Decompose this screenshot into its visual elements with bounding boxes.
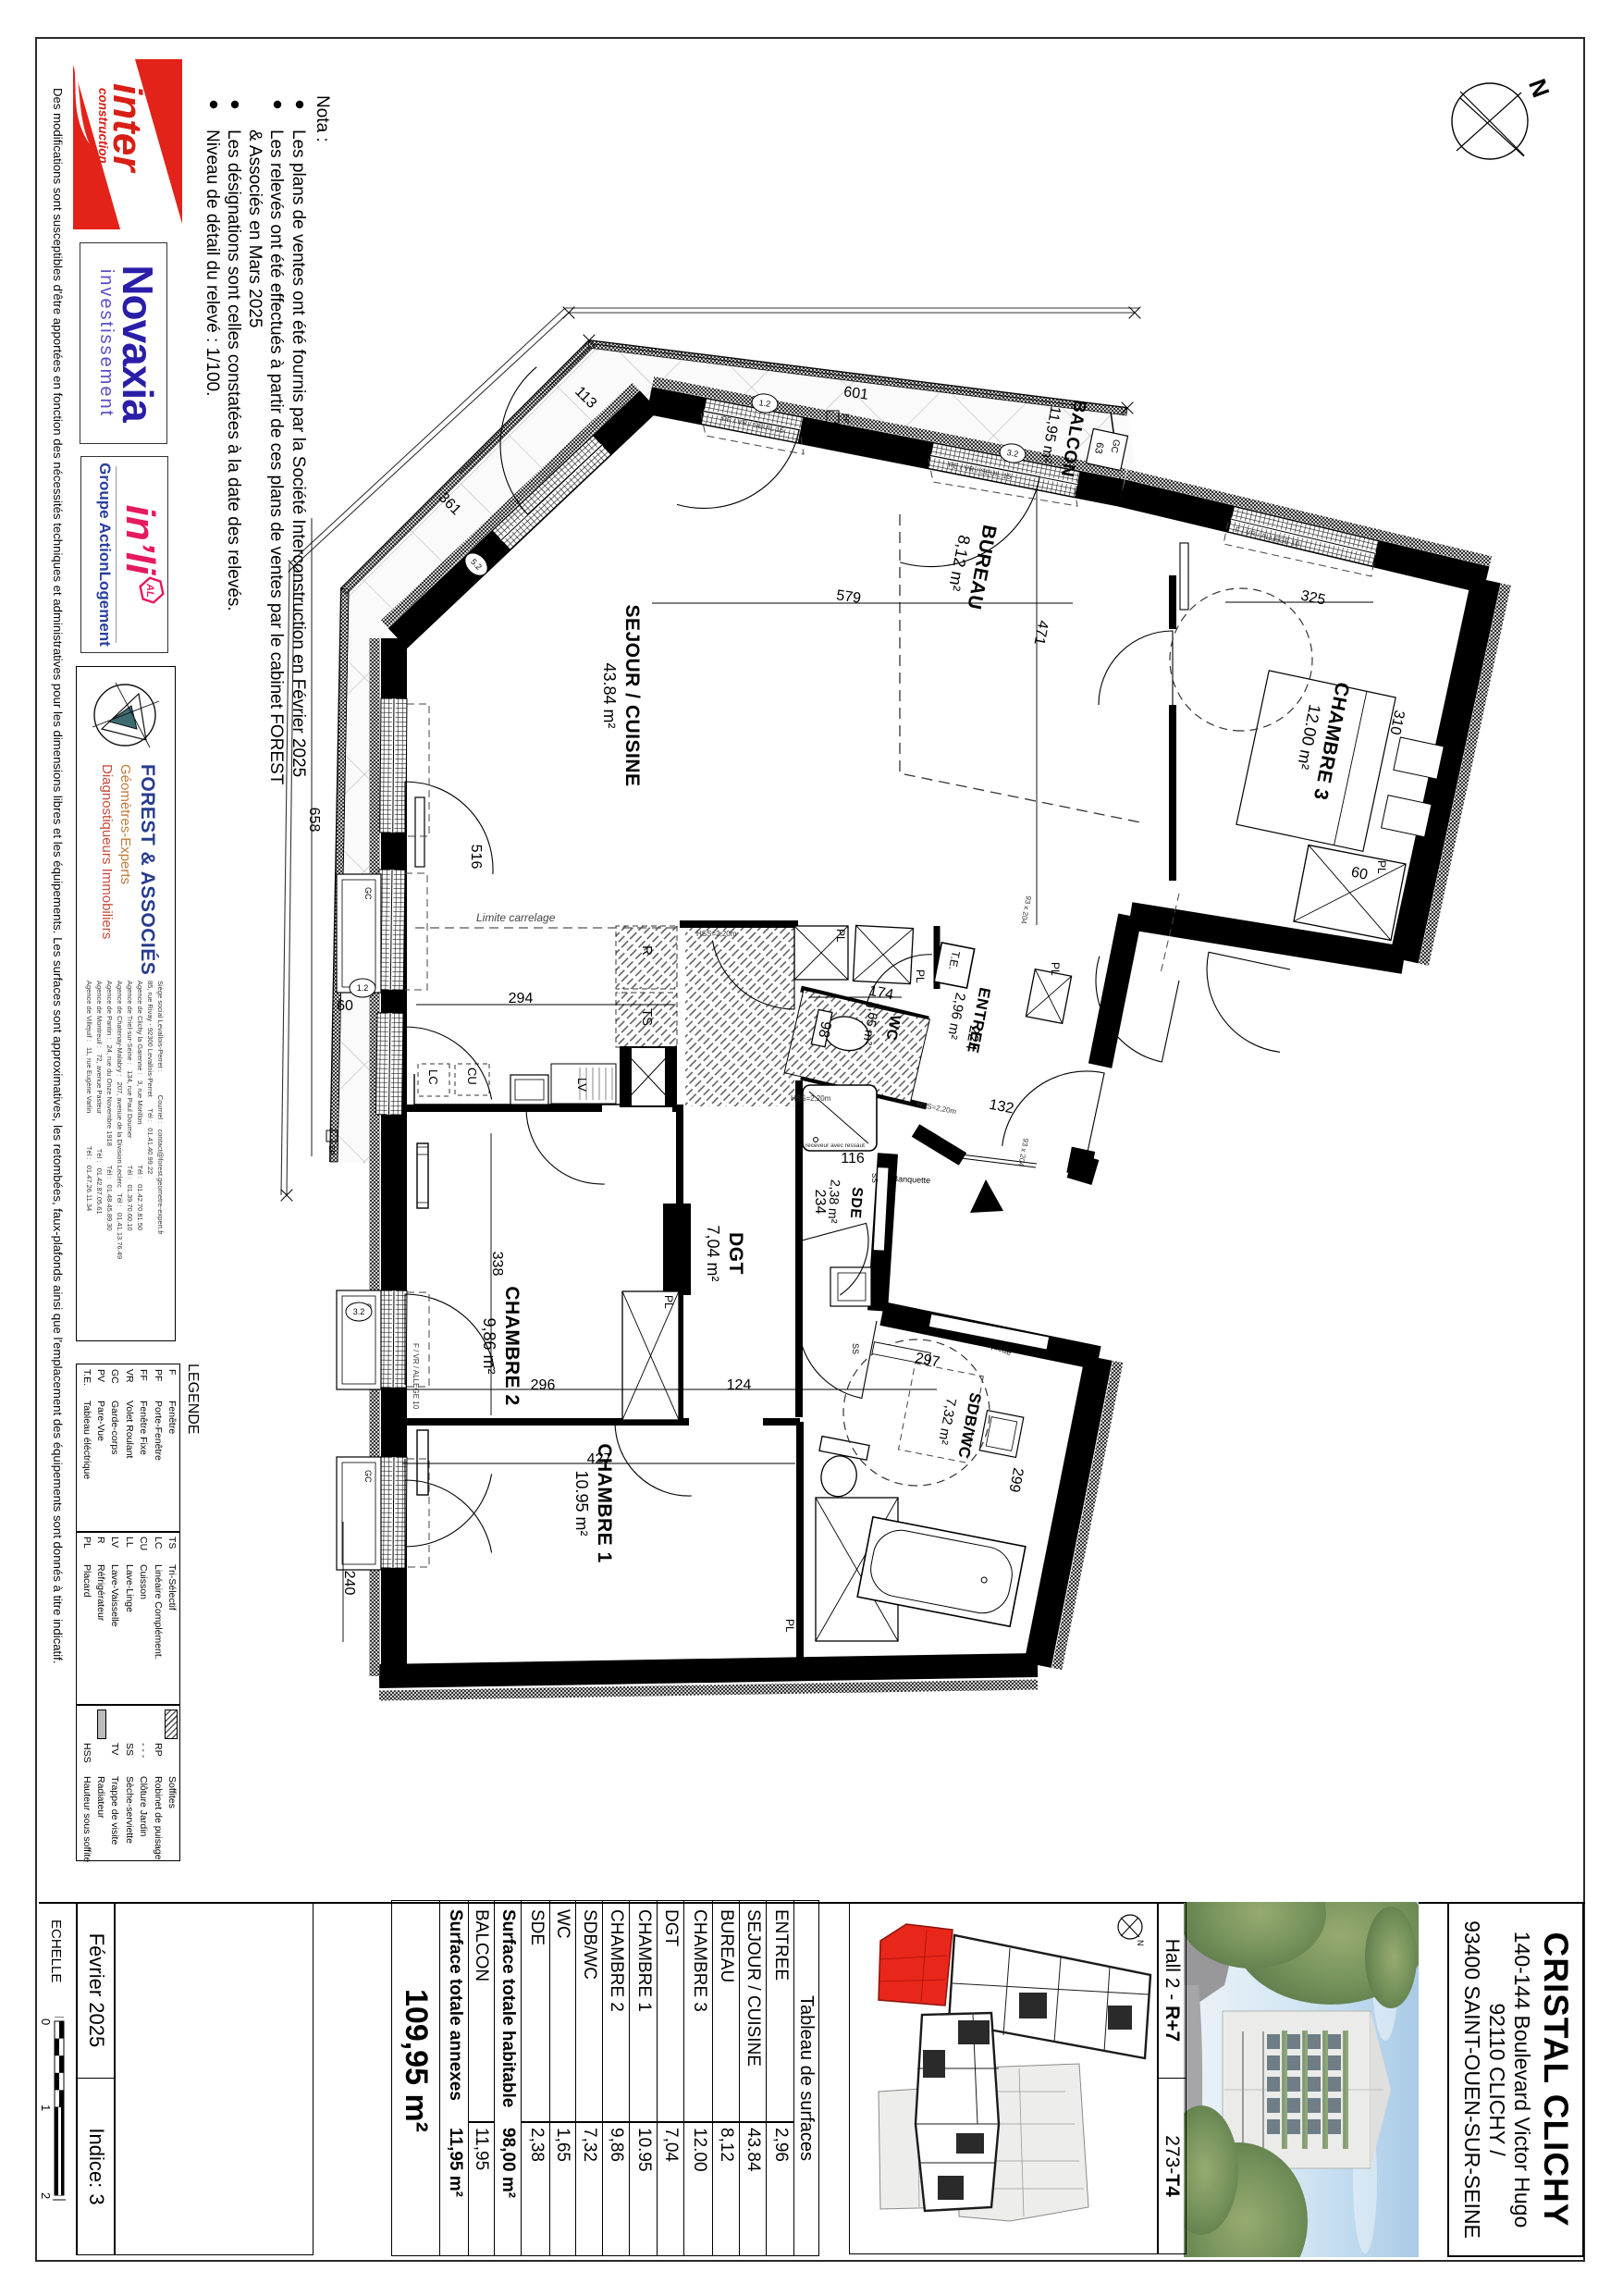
svg-text:325: 325 <box>1299 588 1327 609</box>
svg-text:579: 579 <box>835 587 862 607</box>
svg-text:CHAMBRE 2: CHAMBRE 2 <box>501 1286 523 1405</box>
svg-text:LC: LC <box>426 1069 440 1085</box>
svg-text:98: 98 <box>815 1020 833 1040</box>
svg-text:3.2: 3.2 <box>1006 448 1019 459</box>
svg-text:234: 234 <box>812 1190 828 1215</box>
svg-text:1.2: 1.2 <box>357 983 369 993</box>
svg-text:658: 658 <box>306 808 322 833</box>
svg-text:N: N <box>1523 75 1555 101</box>
svg-text:338: 338 <box>489 1252 505 1277</box>
svg-text:2,96 m²: 2,96 m² <box>944 992 968 1041</box>
svg-text:427: 427 <box>587 1451 612 1467</box>
svg-text:Niveau de détail du relevé : 1: Niveau de détail du relevé : 1/100. <box>203 130 222 396</box>
svg-text:TS: TS <box>639 1008 655 1026</box>
svg-text:1: 1 <box>40 2105 53 2111</box>
svg-text:2,38 m²: 2,38 m² <box>825 1179 842 1224</box>
svg-text:SS: SS <box>851 1343 860 1354</box>
svg-text:Nota :: Nota : <box>313 95 332 142</box>
svg-text:Limite carrelage: Limite carrelage <box>476 911 556 924</box>
svg-text:297: 297 <box>914 1351 941 1371</box>
svg-text:PL: PL <box>1375 860 1388 874</box>
svg-text:240: 240 <box>341 1571 357 1596</box>
svg-text:60: 60 <box>337 998 353 1014</box>
svg-text:F / VR / ALLEGE 10: F / VR / ALLEGE 10 <box>412 1343 420 1410</box>
svg-text:HSS=2,20m: HSS=2,20m <box>696 930 737 938</box>
svg-text:516: 516 <box>468 845 484 870</box>
svg-text:HSS=2,20m: HSS=2,20m <box>916 1100 958 1116</box>
svg-text:294: 294 <box>509 991 534 1006</box>
svg-text:63: 63 <box>1092 441 1105 454</box>
svg-text:2: 2 <box>40 2192 53 2199</box>
svg-text:HSS=2,20m: HSS=2,20m <box>791 1094 831 1103</box>
svg-text:AL: AL <box>144 583 155 598</box>
svg-text:7,32 m²: 7,32 m² <box>935 1397 959 1446</box>
svg-text:R: R <box>639 945 655 956</box>
svg-text:N: N <box>1136 1940 1145 1946</box>
svg-text:132: 132 <box>988 1097 1015 1117</box>
svg-text:EP: EP <box>327 1145 336 1155</box>
svg-text:GC: GC <box>363 887 373 900</box>
svg-text:PL: PL <box>914 969 927 983</box>
svg-text:0: 0 <box>40 2018 53 2025</box>
svg-text:& Associés en Mars 2025: & Associés en Mars 2025 <box>245 130 264 327</box>
svg-text:inter: inter <box>105 83 150 174</box>
svg-text:Les relevés ont été effectués: Les relevés ont été effectués à partir d… <box>266 130 286 785</box>
svg-text:PL: PL <box>1049 962 1062 976</box>
svg-text:60: 60 <box>1349 864 1369 883</box>
svg-text:299: 299 <box>1006 1466 1027 1494</box>
svg-text:Des modifications sont suscept: Des modifications sont susceptibles d'êt… <box>51 88 65 1663</box>
svg-text:116: 116 <box>841 1151 865 1167</box>
svg-text:DGT: DGT <box>725 1232 746 1275</box>
svg-text:receveur avec ressaut: receveur avec ressaut <box>805 1142 865 1149</box>
svg-text:PL: PL <box>662 1295 675 1309</box>
svg-text:124: 124 <box>727 1377 752 1393</box>
svg-text:43.84 m²: 43.84 m² <box>600 662 619 728</box>
svg-text:Banquette: Banquette <box>892 1174 931 1185</box>
svg-text:SDE: SDE <box>847 1187 865 1220</box>
svg-text:EP: EP <box>842 414 850 424</box>
svg-text:10.95 m²: 10.95 m² <box>572 1470 591 1536</box>
svg-text:296: 296 <box>531 1377 556 1393</box>
svg-text:3.2: 3.2 <box>353 1307 365 1316</box>
svg-text:9,86 m²: 9,86 m² <box>480 1317 498 1374</box>
svg-text:CU: CU <box>465 1068 479 1085</box>
svg-text:SEJOUR / CUISINE: SEJOUR / CUISINE <box>621 604 643 786</box>
svg-text:LV: LV <box>575 1078 589 1092</box>
svg-text:Les plans de ventes ont été fo: Les plans de ventes ont été fournis par … <box>289 130 308 777</box>
svg-text:224: 224 <box>963 1024 983 1052</box>
svg-text:GC: GC <box>363 1470 373 1483</box>
svg-text:7,04 m²: 7,04 m² <box>704 1225 722 1281</box>
svg-text:PL: PL <box>783 1619 796 1633</box>
svg-text:construction: construction <box>96 88 110 164</box>
svg-text:1.2: 1.2 <box>758 398 771 409</box>
svg-text:93 x 204: 93 x 204 <box>1019 895 1033 925</box>
svg-text:SS: SS <box>870 1173 879 1183</box>
svg-text:174: 174 <box>867 983 895 1004</box>
svg-text:471: 471 <box>1031 619 1051 647</box>
svg-text:Les désignations sont celles c: Les désignations sont celles constatées … <box>224 130 243 611</box>
svg-text:PL: PL <box>834 929 847 943</box>
